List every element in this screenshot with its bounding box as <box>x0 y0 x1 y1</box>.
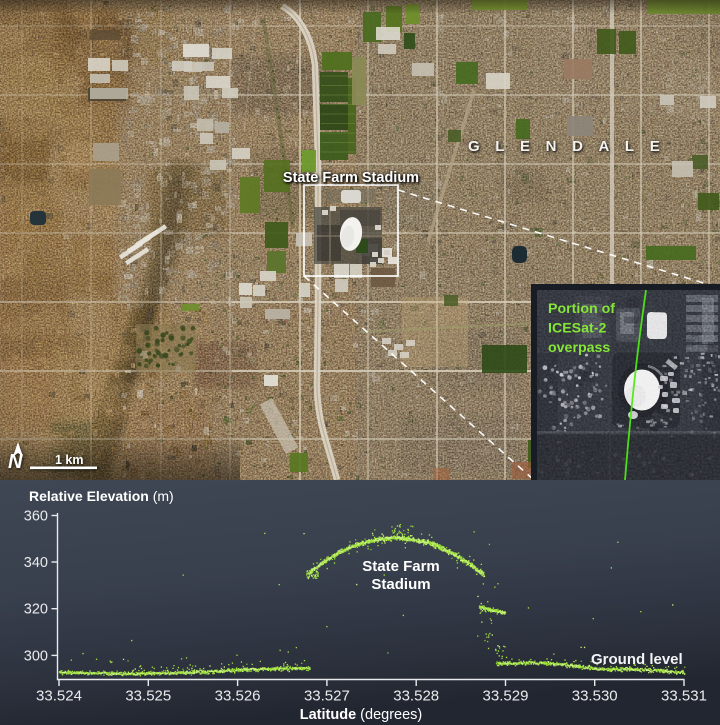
svg-text:360: 360 <box>24 509 48 525</box>
svg-text:33.529: 33.529 <box>483 688 529 705</box>
svg-text:Latitude (degrees): Latitude (degrees) <box>300 707 422 723</box>
svg-text:340: 340 <box>24 555 48 571</box>
svg-text:33.525: 33.525 <box>125 688 171 705</box>
svg-text:33.524: 33.524 <box>36 688 82 705</box>
svg-text:Relative Elevation (m): Relative Elevation (m) <box>29 488 174 504</box>
svg-text:33.530: 33.530 <box>572 688 618 705</box>
svg-text:State FarmStadium: State FarmStadium <box>362 558 440 593</box>
svg-text:33.531: 33.531 <box>661 688 707 705</box>
svg-text:Portion ofICESat-2overpass: Portion ofICESat-2overpass <box>548 301 615 356</box>
svg-text:State Farm Stadium: State Farm Stadium <box>283 170 419 186</box>
svg-text:N: N <box>8 451 23 473</box>
svg-text:33.528: 33.528 <box>393 688 439 705</box>
svg-text:Ground level: Ground level <box>591 651 683 668</box>
svg-text:320: 320 <box>24 602 48 618</box>
svg-text:33.527: 33.527 <box>304 688 350 705</box>
svg-text:1 km: 1 km <box>55 453 84 467</box>
svg-text:GLENDALE: GLENDALE <box>468 138 675 155</box>
svg-text:300: 300 <box>24 648 48 664</box>
svg-text:33.526: 33.526 <box>215 688 261 705</box>
